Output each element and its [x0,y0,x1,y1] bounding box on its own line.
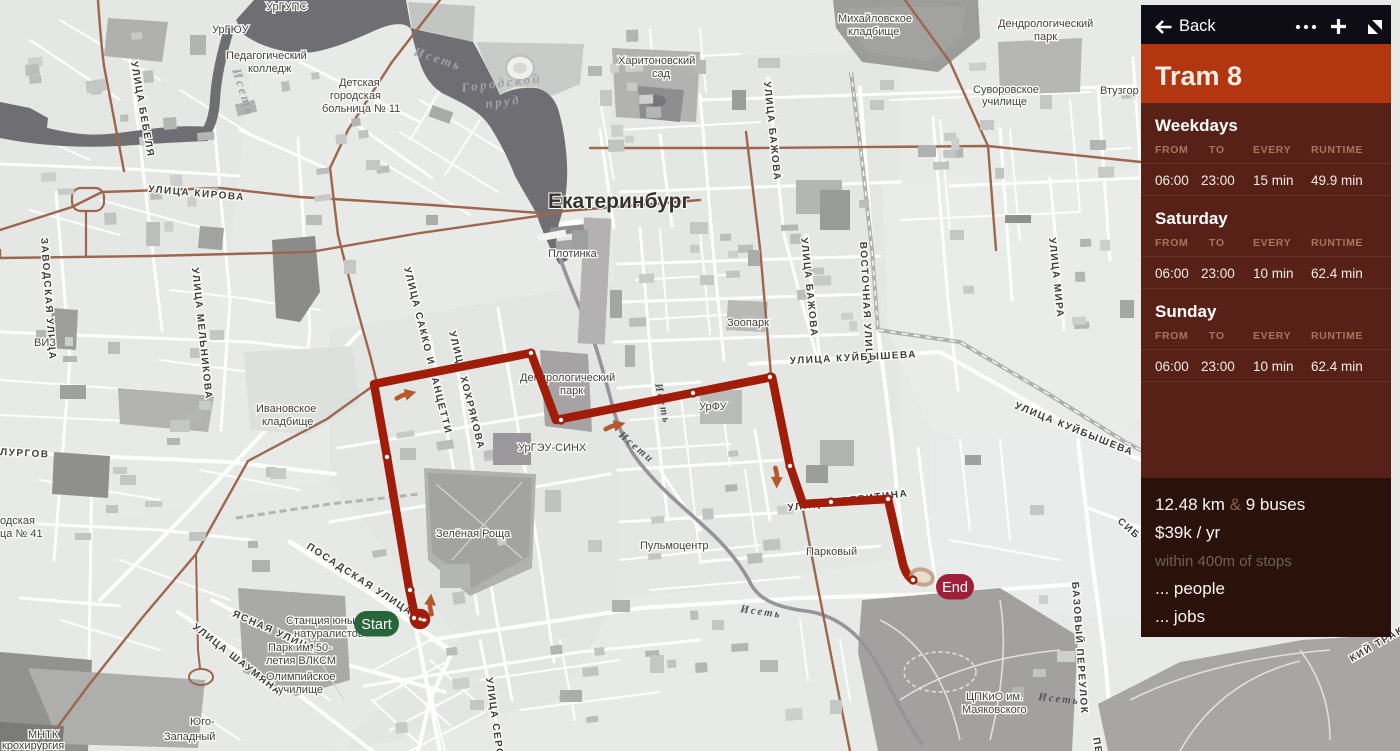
svg-text:Суворовское: Суворовское [973,84,1039,96]
svg-text:летия ВЛКСМ: летия ВЛКСМ [266,655,336,667]
svg-text:крохирургия: крохирургия [2,740,64,751]
svg-text:Екатеринбург: Екатеринбург [548,190,691,213]
svg-text:Зоопарк: Зоопарк [727,317,769,329]
svg-text:Зелёная Роща: Зелёная Роща [436,528,511,540]
svg-text:Плотинка: Плотинка [548,248,598,260]
svg-text:одская: одская [0,515,35,527]
svg-text:училище: училище [982,96,1027,108]
svg-text:кладбище: кладбище [262,416,313,428]
svg-text:сад: сад [652,68,671,80]
svg-text:натуралистов: натуралистов [294,628,364,640]
svg-text:училище: училище [278,684,323,696]
svg-text:Ивановское: Ивановское [256,403,316,415]
svg-text:Михайловское: Михайловское [838,13,912,25]
svg-text:ВИЗ: ВИЗ [34,337,56,349]
svg-text:УрГУПС: УрГУПС [266,1,307,13]
svg-text:парк: парк [560,385,583,397]
svg-text:Парковый: Парковый [806,546,857,558]
svg-text:End: End [942,580,968,596]
svg-text:УрГЭУ-СИНХ: УрГЭУ-СИНХ [518,442,587,454]
svg-text:ЦПКиО им.: ЦПКиО им. [966,691,1023,703]
svg-text:Пульмоцентр: Пульмоцентр [640,540,709,552]
svg-text:Юго-: Юго- [190,716,215,728]
svg-text:Педагогический: Педагогический [226,50,307,62]
svg-text:городская: городская [330,90,381,102]
svg-text:Станция юных: Станция юных [286,615,361,627]
svg-text:Start: Start [361,617,392,633]
svg-text:Парк им. 50-: Парк им. 50- [268,642,332,654]
svg-text:кладбище: кладбище [848,26,899,38]
svg-text:Харитоновский: Харитоновский [618,55,695,67]
svg-text:УрГЮУ: УрГЮУ [212,24,250,36]
svg-text:Западный: Западный [164,731,215,743]
svg-text:колледж: колледж [248,63,292,75]
svg-text:Олимпийское: Олимпийское [266,671,335,683]
svg-text:больница № 11: больница № 11 [322,103,400,115]
svg-text:УрФУ: УрФУ [699,401,727,413]
svg-text:Втузгор: Втузгор [1100,85,1139,97]
svg-text:ца № 41: ца № 41 [0,528,43,540]
svg-text:Дендрологический: Дендрологический [998,18,1093,30]
svg-text:парк: парк [1034,31,1057,43]
svg-text:Маяковского: Маяковского [962,704,1027,716]
svg-text:Детская: Детская [339,77,380,89]
